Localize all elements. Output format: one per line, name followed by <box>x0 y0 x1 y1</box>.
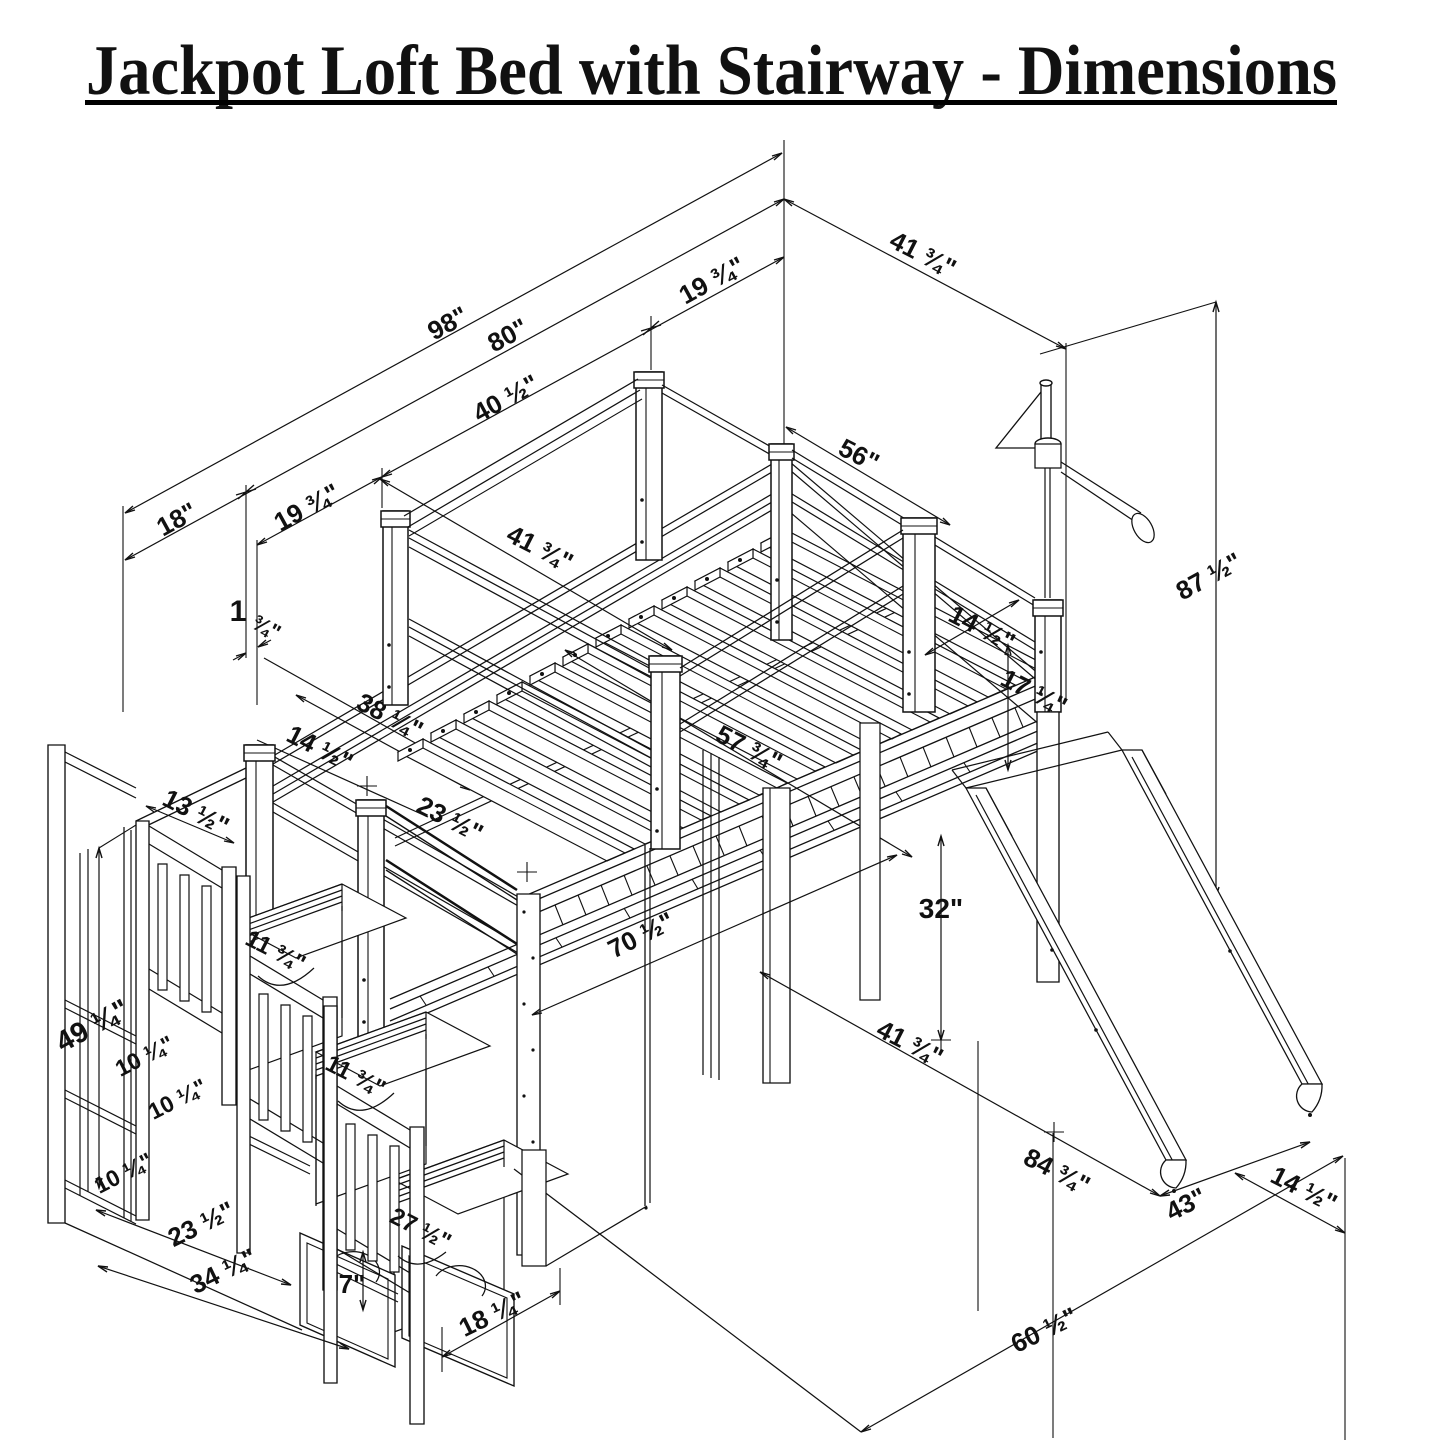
svg-text:1: 1 <box>230 595 247 628</box>
svg-text:7": 7" <box>339 1269 366 1299</box>
svg-text:Jackpot Loft Bed with Stairway: Jackpot Loft Bed with Stairway - Dimensi… <box>86 32 1337 110</box>
svg-text:32": 32" <box>919 893 963 924</box>
